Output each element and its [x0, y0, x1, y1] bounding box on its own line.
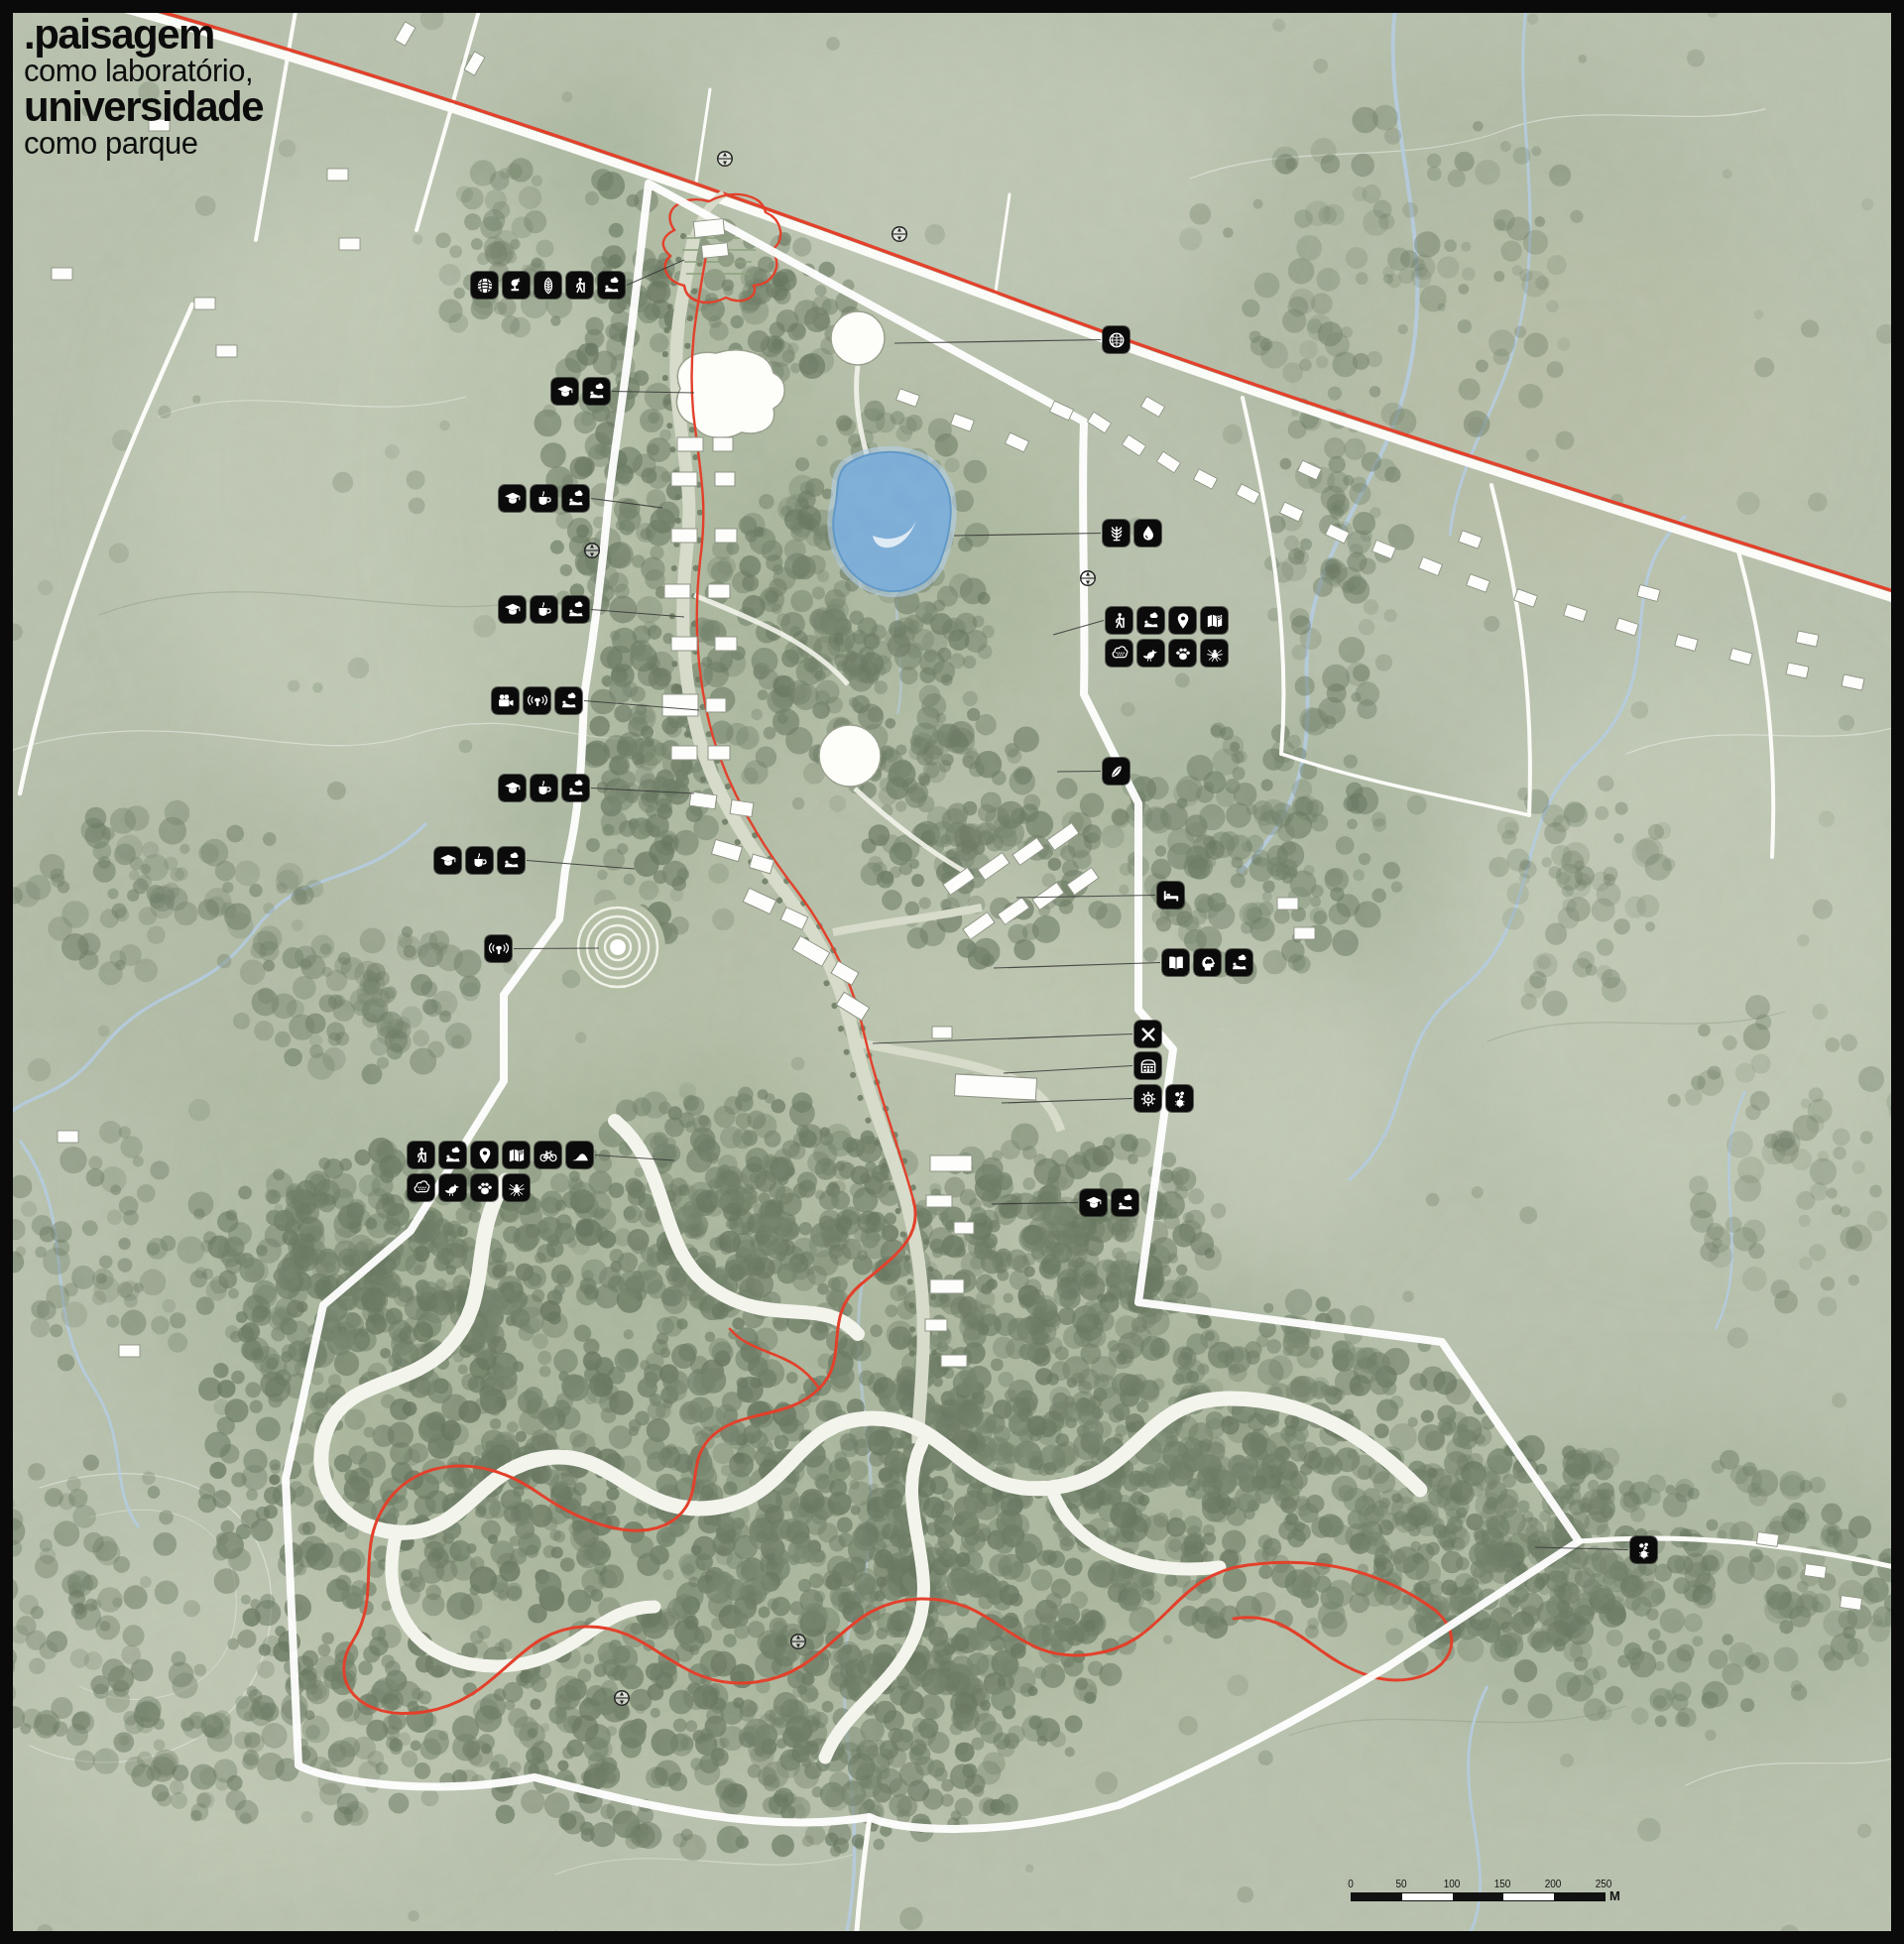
hiker-glyph: [1110, 611, 1130, 631]
map-pin-icon: [1169, 607, 1196, 634]
mind-cloud-glyph: [1198, 953, 1218, 973]
hiker-icon: [566, 272, 593, 299]
graduation-cap-icon: [499, 596, 526, 623]
geodesic-dome-glyph: [1107, 330, 1127, 350]
graduation-cap-icon: [551, 378, 578, 405]
graduation-cap-glyph: [503, 600, 523, 620]
map-pin-glyph: [1173, 611, 1193, 631]
relax-lounger-glyph: [587, 382, 607, 402]
scale-segment: [1554, 1893, 1605, 1900]
paw-print-glyph: [1173, 644, 1193, 664]
songbird-glyph: [443, 1178, 463, 1198]
hill-glyph: [570, 1146, 590, 1165]
scale-segment: [1503, 1893, 1554, 1900]
hill-icon: [566, 1142, 593, 1168]
film-camera-icon: [492, 687, 519, 714]
water-drop-glyph: [1138, 524, 1158, 544]
water-drop-icon: [1134, 520, 1161, 547]
wool-yarn-icon: [471, 272, 498, 299]
title-line-4: como parque: [24, 128, 263, 159]
relax-lounger-glyph: [602, 276, 622, 296]
poultry-glyph: [507, 276, 527, 296]
scale-tick-label: 250: [1596, 1879, 1612, 1889]
coffee-cup-icon: [531, 485, 557, 512]
coffee-cup-icon: [531, 775, 557, 801]
mind-cloud-icon: [1194, 949, 1221, 976]
wheat-leaf-icon: [535, 272, 561, 299]
wool-yarn-glyph: [475, 276, 495, 296]
open-air-stage-glyph: [528, 691, 547, 711]
hiker-glyph: [570, 276, 590, 296]
bed-glyph: [1161, 886, 1181, 906]
wheat-leaf-glyph: [538, 276, 558, 296]
scale-segment: [1453, 1893, 1503, 1900]
relax-lounger-glyph: [502, 851, 522, 871]
espalier-tree-icon: [1103, 520, 1130, 547]
fruit-tree-glyph: [1634, 1540, 1654, 1560]
bicycle-icon: [535, 1142, 561, 1168]
relax-lounger-icon: [562, 775, 589, 801]
bicycle-glyph: [538, 1146, 558, 1165]
open-air-stage-glyph: [489, 939, 509, 959]
bed-icon: [1157, 882, 1184, 909]
relax-lounger-icon: [1112, 1189, 1138, 1216]
crossed-cutlery-glyph: [1138, 1025, 1158, 1044]
relax-lounger-icon: [555, 687, 582, 714]
leaf-glyph: [1107, 762, 1127, 782]
trail-map-glyph: [507, 1146, 527, 1165]
hiker-glyph: [412, 1146, 431, 1165]
gear-glyph: [1138, 1089, 1158, 1109]
scale-tick-label: 200: [1545, 1879, 1562, 1889]
relax-lounger-icon: [562, 596, 589, 623]
spider-icon: [1201, 640, 1228, 667]
map-pin-icon: [471, 1142, 498, 1168]
open-air-stage-icon: [524, 687, 550, 714]
relax-lounger-icon: [498, 847, 525, 874]
title-line-3: universidade: [24, 86, 263, 128]
relax-lounger-glyph: [566, 779, 586, 798]
tree-canopy-glyph: [1110, 644, 1130, 664]
relax-lounger-icon: [1226, 949, 1252, 976]
graduation-cap-glyph: [555, 382, 575, 402]
poultry-icon: [503, 272, 530, 299]
relax-lounger-glyph: [566, 600, 586, 620]
graduation-cap-glyph: [503, 489, 523, 509]
graduation-cap-icon: [434, 847, 461, 874]
relax-lounger-glyph: [1230, 953, 1249, 973]
gear-icon: [1134, 1085, 1161, 1112]
market-hall-glyph: [1138, 1056, 1158, 1076]
relax-lounger-glyph: [1141, 611, 1161, 631]
paw-print-icon: [1169, 640, 1196, 667]
songbird-icon: [439, 1174, 466, 1201]
hiker-icon: [1106, 607, 1132, 634]
graduation-cap-glyph: [1084, 1193, 1104, 1213]
map-pin-glyph: [475, 1146, 495, 1165]
graduation-cap-icon: [499, 485, 526, 512]
scale-tick-label: 50: [1395, 1879, 1406, 1889]
relax-lounger-icon: [1137, 607, 1164, 634]
scale-segment: [1402, 1893, 1453, 1900]
songbird-glyph: [1141, 644, 1161, 664]
songbird-icon: [1137, 640, 1164, 667]
geodesic-dome-icon: [1103, 326, 1130, 353]
coffee-cup-icon: [531, 596, 557, 623]
tree-canopy-icon: [1106, 640, 1132, 667]
relax-lounger-icon: [439, 1142, 466, 1168]
spider-glyph: [507, 1178, 527, 1198]
paw-print-glyph: [475, 1178, 495, 1198]
tree-canopy-icon: [408, 1174, 434, 1201]
open-air-stage-icon: [485, 935, 512, 962]
relax-lounger-glyph: [443, 1146, 463, 1165]
trail-map-icon: [503, 1142, 530, 1168]
masterplan-poster: .paisagem como laboratório, universidade…: [0, 0, 1904, 1944]
coffee-cup-glyph: [470, 851, 490, 871]
relax-lounger-glyph: [1116, 1193, 1135, 1213]
crossed-cutlery-icon: [1134, 1021, 1161, 1047]
scale-segment: [1352, 1893, 1402, 1900]
relax-lounger-icon: [583, 378, 610, 405]
scale-bar-segments: [1351, 1892, 1606, 1901]
title-line-1: .paisagem: [24, 14, 263, 56]
relax-lounger-icon: [562, 485, 589, 512]
hiker-icon: [408, 1142, 434, 1168]
open-book-icon: [1162, 949, 1189, 976]
tree-canopy-glyph: [412, 1178, 431, 1198]
fruit-tree-icon: [1630, 1536, 1657, 1563]
relax-lounger-glyph: [559, 691, 579, 711]
coffee-cup-glyph: [535, 489, 554, 509]
relax-lounger-icon: [598, 272, 625, 299]
espalier-tree-glyph: [1107, 524, 1127, 544]
title-line-2: como laboratório,: [24, 56, 263, 86]
scale-bar: M 050100150200250: [1351, 1879, 1658, 1918]
coffee-cup-glyph: [535, 600, 554, 620]
leaf-icon: [1103, 758, 1130, 785]
poster-title: .paisagem como laboratório, universidade…: [24, 14, 263, 159]
scale-unit-label: M: [1609, 1888, 1620, 1903]
coffee-cup-icon: [466, 847, 493, 874]
coffee-cup-glyph: [535, 779, 554, 798]
scale-tick-label: 100: [1444, 1879, 1461, 1889]
trail-map-glyph: [1205, 611, 1225, 631]
graduation-cap-glyph: [503, 779, 523, 798]
paw-print-icon: [471, 1174, 498, 1201]
legend-icons-layer: [0, 0, 1904, 1944]
scale-tick-label: 0: [1348, 1879, 1354, 1889]
fruit-tree-icon: [1166, 1085, 1193, 1112]
graduation-cap-icon: [499, 775, 526, 801]
relax-lounger-glyph: [566, 489, 586, 509]
spider-glyph: [1205, 644, 1225, 664]
market-hall-icon: [1134, 1052, 1161, 1079]
film-camera-glyph: [496, 691, 516, 711]
graduation-cap-glyph: [438, 851, 458, 871]
fruit-tree-glyph: [1170, 1089, 1190, 1109]
open-book-glyph: [1166, 953, 1186, 973]
trail-map-icon: [1201, 607, 1228, 634]
scale-tick-label: 150: [1494, 1879, 1511, 1889]
spider-icon: [503, 1174, 530, 1201]
graduation-cap-icon: [1080, 1189, 1107, 1216]
